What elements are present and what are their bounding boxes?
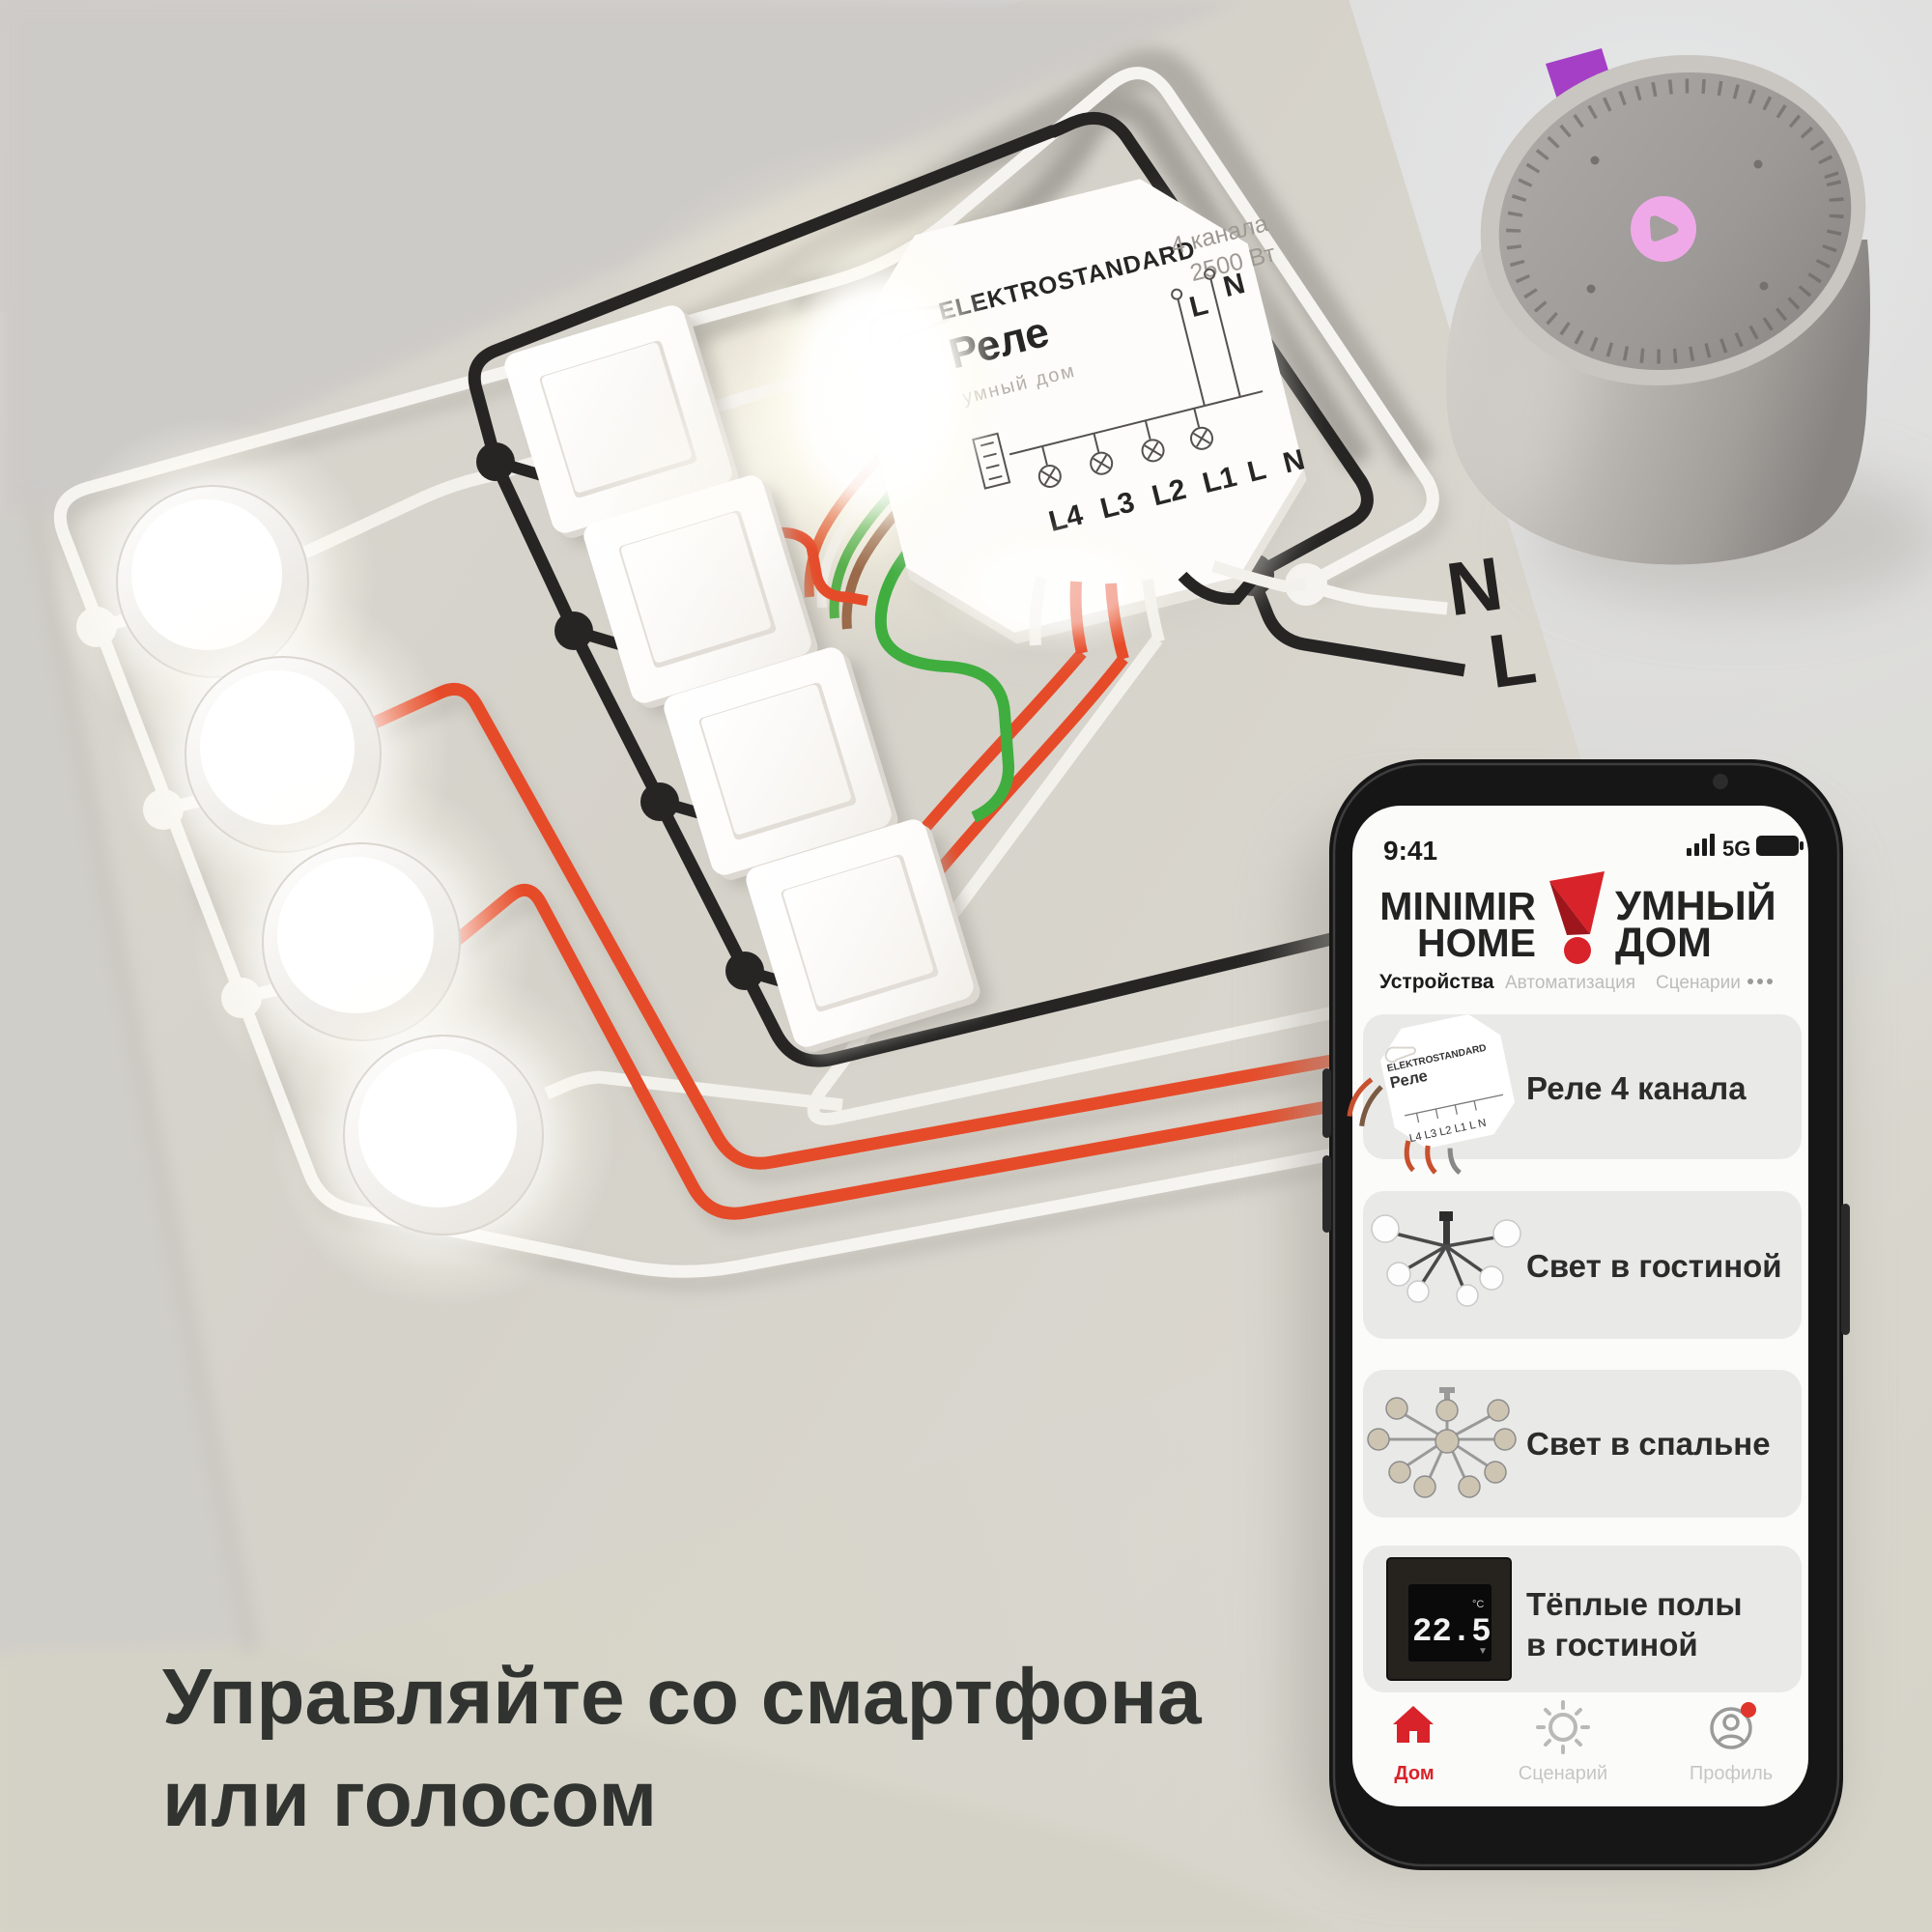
svg-text:или голосом: или голосом xyxy=(162,1755,657,1843)
svg-text:▼: ▼ xyxy=(1478,1646,1488,1657)
svg-text:Свет в спальне: Свет в спальне xyxy=(1526,1426,1771,1462)
svg-text:Тёплые полы: Тёплые полы xyxy=(1526,1586,1743,1622)
svg-text:в гостиной: в гостиной xyxy=(1526,1627,1698,1662)
svg-text:Дом: Дом xyxy=(1394,1763,1434,1784)
svg-text:HOME: HOME xyxy=(1417,921,1536,965)
svg-text:Автоматизация: Автоматизация xyxy=(1505,973,1635,993)
svg-text:Устройства: Устройства xyxy=(1379,971,1494,993)
svg-text:ДОМ: ДОМ xyxy=(1615,920,1712,966)
svg-text:Профиль: Профиль xyxy=(1690,1763,1773,1784)
svg-text:°C: °C xyxy=(1472,1599,1484,1610)
svg-text:Управляйте со смартфона: Управляйте со смартфона xyxy=(162,1653,1203,1741)
svg-text:Свет в гостиной: Свет в гостиной xyxy=(1526,1248,1782,1284)
svg-text:Сценарий: Сценарий xyxy=(1519,1763,1607,1784)
svg-text:9:41: 9:41 xyxy=(1383,836,1437,866)
svg-text:5G: 5G xyxy=(1722,837,1750,861)
svg-text:Реле 4 канала: Реле 4 канала xyxy=(1526,1070,1747,1106)
svg-text:Сценарии: Сценарии xyxy=(1656,973,1741,993)
